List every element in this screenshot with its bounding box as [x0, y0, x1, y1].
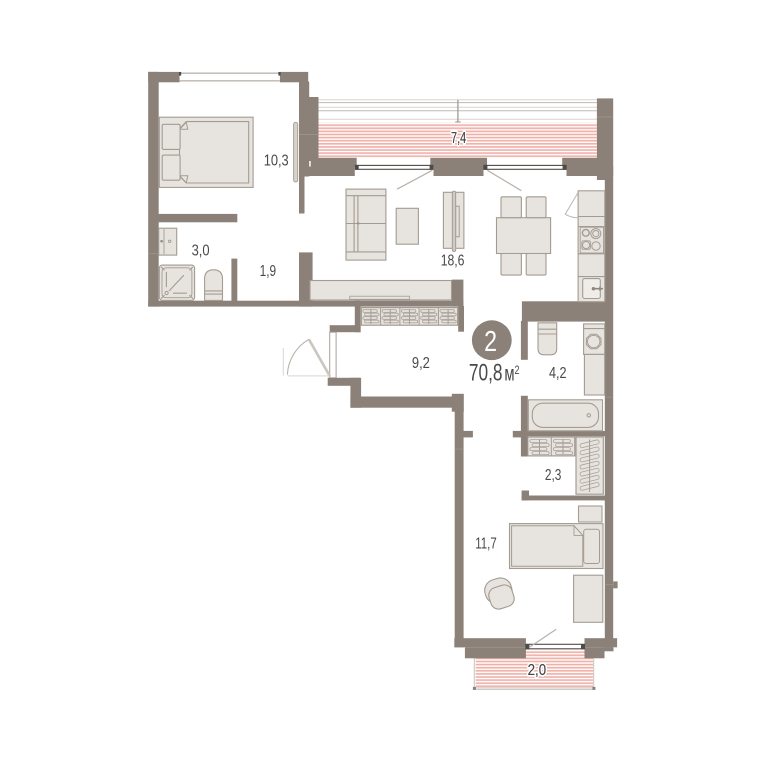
svg-text:7,4: 7,4	[451, 130, 466, 147]
svg-text:3,0: 3,0	[192, 242, 210, 259]
svg-text:9,2: 9,2	[412, 355, 430, 372]
svg-text:2,3: 2,3	[545, 467, 562, 484]
svg-text:10,3: 10,3	[264, 152, 289, 169]
svg-text:2,0: 2,0	[528, 662, 547, 679]
svg-text:2: 2	[484, 326, 497, 358]
svg-text:4,2: 4,2	[549, 365, 567, 382]
svg-text:70,8: 70,8	[469, 360, 503, 387]
svg-text:1,9: 1,9	[260, 263, 277, 280]
svg-text:2: 2	[515, 365, 520, 377]
svg-text:11,7: 11,7	[475, 535, 497, 552]
svg-text:18,6: 18,6	[441, 253, 465, 270]
svg-text:м: м	[504, 363, 514, 386]
